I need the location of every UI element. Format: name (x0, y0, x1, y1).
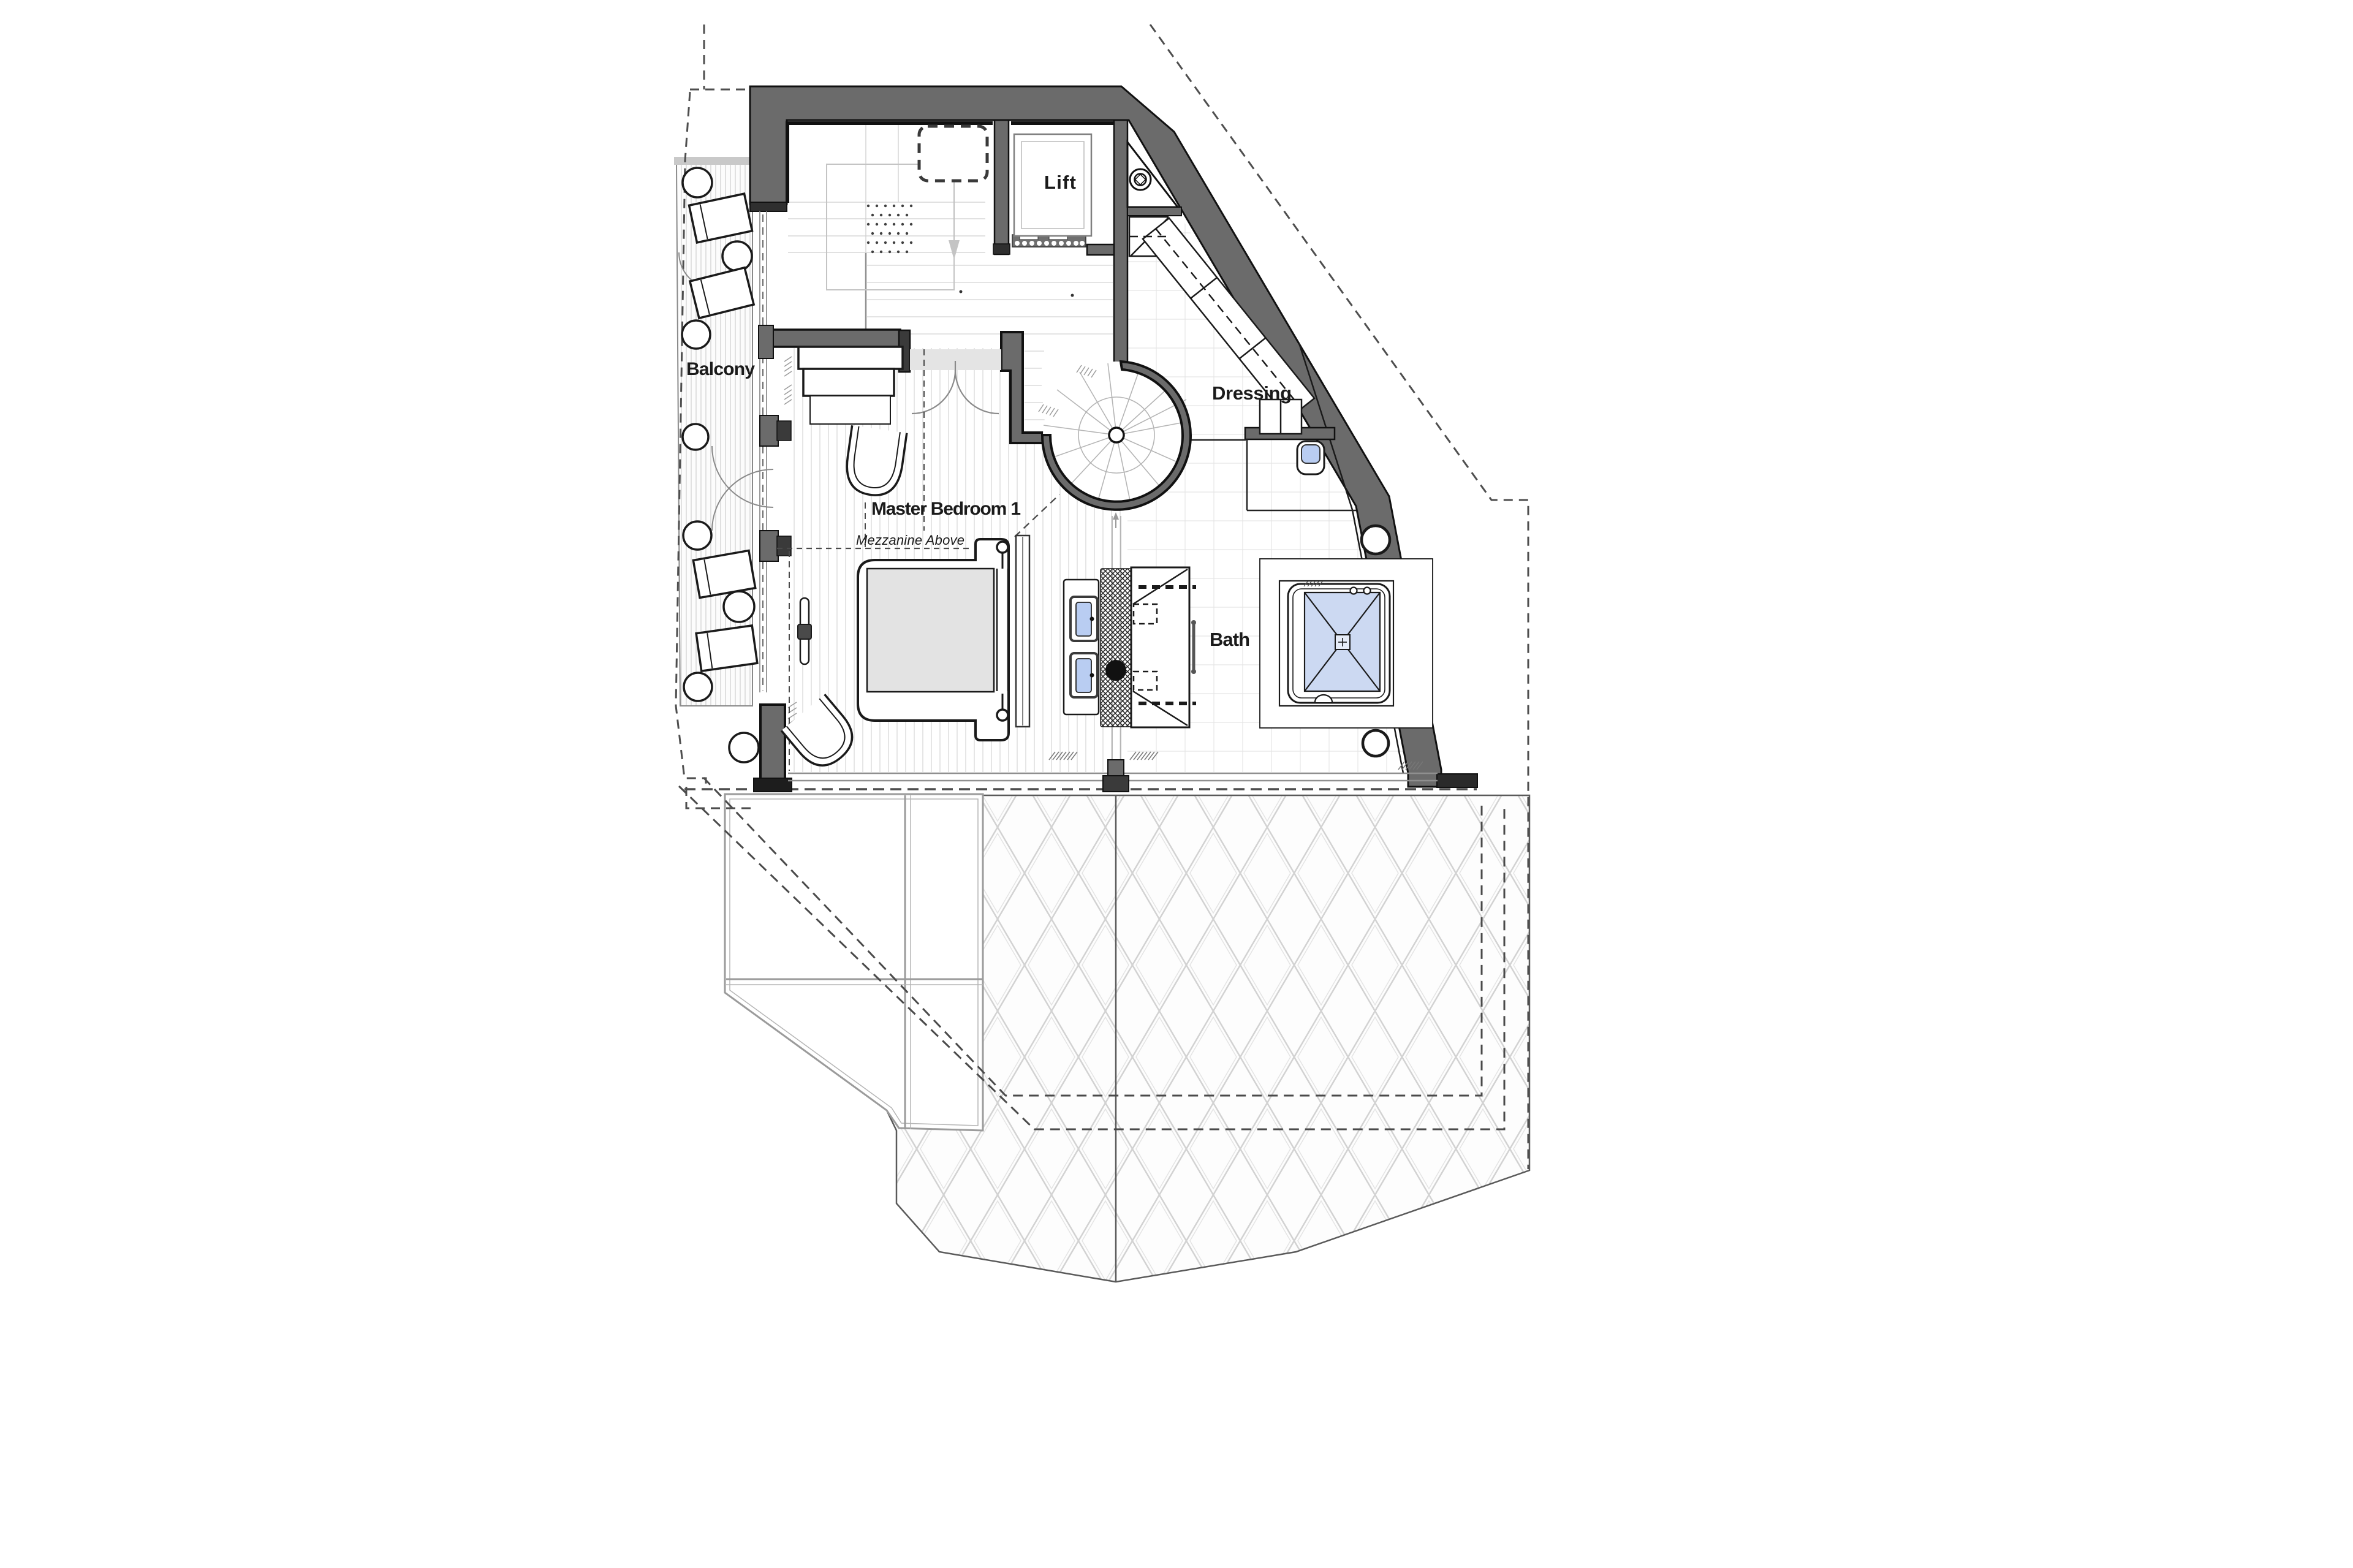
svg-text:Master Bedroom 1: Master Bedroom 1 (871, 499, 1021, 519)
svg-text:Bath: Bath (1210, 629, 1250, 650)
svg-text:Balcony: Balcony (686, 359, 755, 379)
svg-text:Dressing: Dressing (1212, 382, 1292, 404)
svg-text:Lift: Lift (1044, 172, 1076, 193)
svg-text:Mezzanine Above: Mezzanine Above (856, 532, 964, 548)
